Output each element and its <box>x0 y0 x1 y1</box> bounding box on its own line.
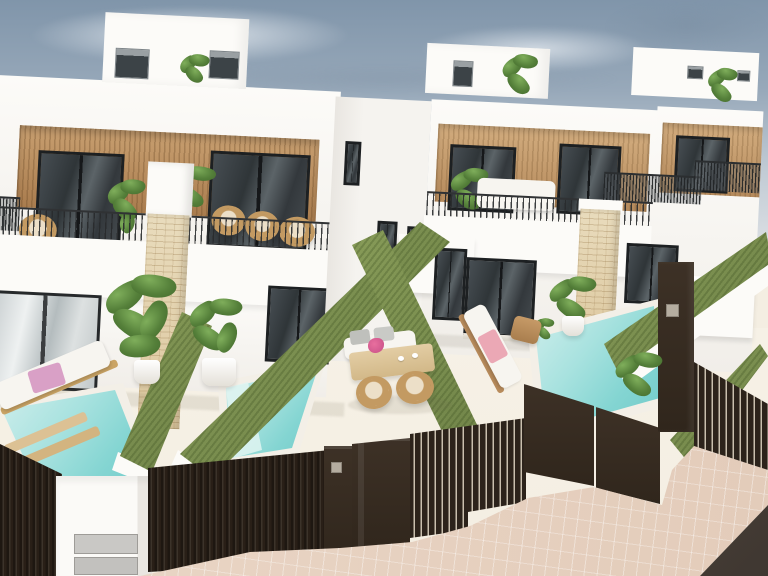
villa-right-balcony-railing <box>603 172 702 205</box>
villa-center-ground-door <box>432 248 467 321</box>
meter-door <box>74 557 138 575</box>
meter-door <box>74 534 138 554</box>
gate-edge-highlight <box>358 442 364 548</box>
plant-pot <box>202 358 236 386</box>
slatted-gate <box>410 426 468 538</box>
rooftop-plant <box>497 50 540 110</box>
plant-pot <box>562 316 584 336</box>
gate-plaque <box>666 304 679 317</box>
villa-render-scene <box>0 0 768 576</box>
villa-right-balcony-railing <box>694 160 761 193</box>
plant-pot <box>134 360 160 384</box>
entry-core-window <box>343 141 361 186</box>
roof-vent-window <box>687 66 704 80</box>
table-cup <box>398 356 404 361</box>
chimney-cap <box>146 161 195 217</box>
rooftop-plant <box>176 51 212 91</box>
roof-vent-window <box>208 50 239 79</box>
rooftop-plant <box>703 65 739 113</box>
table-cup <box>412 353 418 358</box>
street-fence <box>468 418 526 512</box>
roof-vent-window <box>114 48 149 80</box>
gate-front-plant <box>612 348 666 408</box>
roof-vent-window <box>452 60 473 87</box>
gate-plaque <box>331 462 342 473</box>
